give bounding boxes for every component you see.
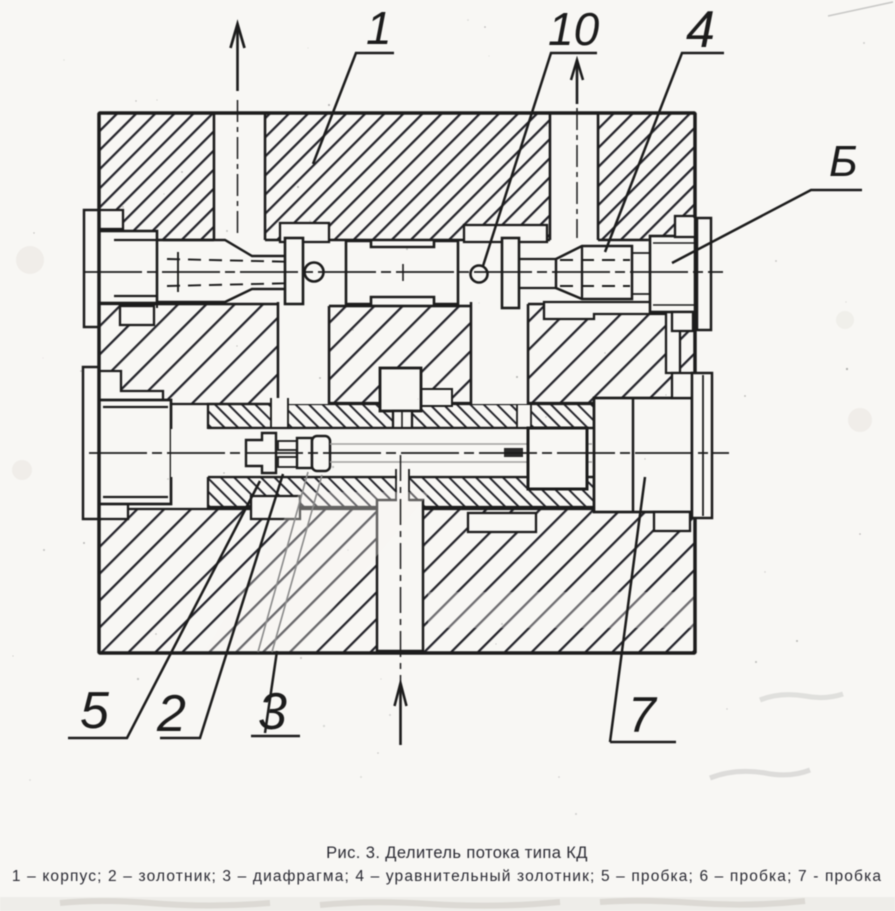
svg-text:7: 7	[628, 687, 658, 743]
svg-text:5: 5	[80, 682, 110, 740]
svg-text:Рис. 3. Делитель потока типа К: Рис. 3. Делитель потока типа КД	[326, 844, 588, 862]
svg-text:2: 2	[156, 685, 186, 743]
svg-text:3: 3	[258, 683, 287, 741]
svg-text:Б: Б	[829, 137, 858, 186]
svg-text:10: 10	[548, 3, 600, 55]
svg-text:1 – корпус; 2 – золотник; 3 –: 1 – корпус; 2 – золотник; 3 – диафрагма;…	[12, 868, 882, 885]
svg-text:4: 4	[686, 1, 715, 59]
svg-text:1: 1	[366, 2, 392, 54]
